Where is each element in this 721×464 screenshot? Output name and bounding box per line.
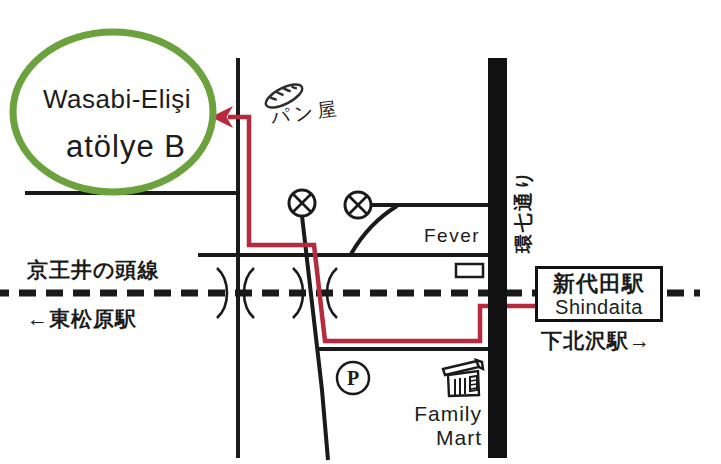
family-mart-storefront-icon — [443, 360, 483, 396]
kannana-road-bar — [488, 58, 507, 458]
small-building-rect — [456, 264, 483, 277]
railway-line-label: 京王井の頭線 — [27, 256, 160, 284]
station-name-en: Shindaita — [538, 297, 660, 318]
family-mart-label-line1: Family — [398, 402, 482, 426]
circled-x-signal-icon — [345, 192, 371, 218]
west-station-label: ←東松原駅 — [27, 305, 137, 333]
route-map: Wasabi-Elişi atölye B パン屋 Fever 環七通り 京王井… — [0, 0, 721, 464]
fever-venue-label: Fever — [424, 225, 480, 247]
shindaita-station-box: 新代田駅 Shindaita — [535, 266, 663, 322]
map-linework — [0, 0, 721, 464]
destination-name-line1: Wasabi-Elişi — [22, 84, 212, 115]
destination-name-line2: atölye B — [40, 129, 212, 165]
circled-x-signal-icon — [289, 190, 315, 216]
east-station-label: 下北沢駅→ — [541, 327, 651, 355]
family-mart-label-line2: Mart — [398, 426, 482, 450]
station-name-jp: 新代田駅 — [538, 271, 660, 297]
parking-p-label: P — [337, 362, 369, 394]
kannana-road-label: 環七通り — [511, 166, 535, 256]
